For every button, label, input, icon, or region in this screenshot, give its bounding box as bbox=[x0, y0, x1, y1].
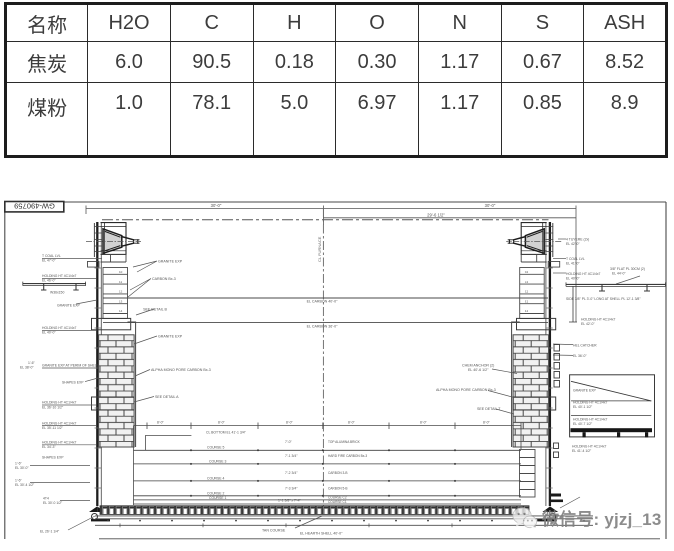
svg-text:HOLDING HT 4C1/4x7: HOLDING HT 4C1/4x7 bbox=[581, 317, 616, 321]
svg-text:EL 40'-7 1/2": EL 40'-7 1/2" bbox=[573, 422, 593, 426]
svg-text:EL 26'-1 1/4": EL 26'-1 1/4" bbox=[40, 530, 60, 534]
svg-text:COURSE 3: COURSE 3 bbox=[209, 459, 226, 463]
svg-text:30'-0": 30'-0" bbox=[211, 203, 222, 208]
svg-text:SEE DETAIL A: SEE DETAIL A bbox=[155, 395, 179, 399]
svg-text:T COAL LVL: T COAL LVL bbox=[42, 254, 61, 258]
svg-text:TAN COURSE: TAN COURSE bbox=[262, 529, 286, 533]
svg-text:8'-0": 8'-0" bbox=[483, 421, 491, 425]
svg-text:4T4: 4T4 bbox=[43, 496, 49, 500]
svg-text:SEE DETAIL B: SEE DETAIL B bbox=[143, 308, 167, 312]
svg-text:7'-2 3/4": 7'-2 3/4" bbox=[285, 471, 298, 475]
svg-text:HEL CATCHER: HEL CATCHER bbox=[573, 343, 597, 347]
svg-text:ALPHA MONO PORE CARBON Bx-3: ALPHA MONO PORE CARBON Bx-3 bbox=[151, 368, 211, 372]
svg-text:1'-1 3/8" x 7'-4": 1'-1 3/8" x 7'-4" bbox=[278, 498, 302, 502]
svg-text:HOLDING HT 4C1/4x7: HOLDING HT 4C1/4x7 bbox=[566, 272, 601, 276]
svg-text:EL 40'-6 1/2": EL 40'-6 1/2" bbox=[468, 368, 489, 372]
svg-text:8'-0": 8'-0" bbox=[348, 421, 356, 425]
svg-text:W36x150: W36x150 bbox=[50, 291, 64, 295]
svg-text:CHEM ANCHOR (2): CHEM ANCHOR (2) bbox=[462, 363, 494, 367]
svg-text:EL 30'-0": EL 30'-0" bbox=[15, 466, 29, 470]
svg-text:EL 40'-0": EL 40'-0" bbox=[42, 331, 56, 335]
svg-text:EL 41'-0": EL 41'-0" bbox=[566, 262, 580, 266]
svg-text:1'-6": 1'-6" bbox=[15, 478, 23, 482]
svg-text:TOP ALUMINA BRICK: TOP ALUMINA BRICK bbox=[328, 440, 361, 444]
svg-text:EL 38'-0": EL 38'-0" bbox=[20, 366, 34, 370]
svg-text:EL 46'-0": EL 46'-0" bbox=[42, 279, 56, 283]
svg-text:ALPHA MONO PORE CARBON Bx-3: ALPHA MONO PORE CARBON Bx-3 bbox=[436, 388, 496, 392]
svg-text:HOLDING HT 4C1/4x7: HOLDING HT 4C1/4x7 bbox=[572, 444, 607, 448]
svg-text:1'-6": 1'-6" bbox=[15, 461, 23, 465]
svg-text:COURSE C1: COURSE C1 bbox=[328, 500, 347, 504]
svg-text:EL 34'-3": EL 34'-3" bbox=[42, 445, 56, 449]
svg-text:HARD FIRE CARBON Bx-3: HARD FIRE CARBON Bx-3 bbox=[328, 454, 367, 458]
svg-text:30'-0": 30'-0" bbox=[485, 203, 496, 208]
svg-text:COURSE 2: COURSE 2 bbox=[207, 492, 224, 496]
svg-text:EL CARBON 40'-0": EL CARBON 40'-0" bbox=[307, 300, 339, 304]
svg-text:CL FURNACE: CL FURNACE bbox=[317, 236, 322, 262]
svg-text:EL 44'-0": EL 44'-0" bbox=[612, 272, 626, 276]
svg-text:1'-6": 1'-6" bbox=[28, 361, 36, 365]
svg-text:SHAPES EXP: SHAPES EXP bbox=[62, 380, 84, 384]
svg-text:GRANITE EXP: GRANITE EXP bbox=[158, 334, 183, 338]
svg-text:EL 35'-11 1/2": EL 35'-11 1/2" bbox=[42, 426, 64, 430]
svg-text:HOLDING HT 4C1/4x7: HOLDING HT 4C1/4x7 bbox=[573, 418, 608, 422]
svg-text:GW-490759: GW-490759 bbox=[14, 202, 55, 211]
svg-text:HOLDING HT 4C1/4x7: HOLDING HT 4C1/4x7 bbox=[42, 326, 77, 330]
svg-text:EL HEARTH SHELL 40'-0": EL HEARTH SHELL 40'-0" bbox=[300, 532, 343, 536]
svg-text:29'-6 1/2": 29'-6 1/2" bbox=[427, 212, 445, 217]
svg-text:COURSE 5: COURSE 5 bbox=[207, 446, 224, 450]
svg-text:GRANITE EXP: GRANITE EXP bbox=[573, 388, 597, 392]
svg-text:SHAPES EXP: SHAPES EXP bbox=[42, 455, 64, 459]
svg-text:EL 42'-0": EL 42'-0" bbox=[581, 322, 595, 326]
svg-text:8'-0": 8'-0" bbox=[218, 421, 226, 425]
svg-text:3/8" FLAT PL 30CM (2): 3/8" FLAT PL 30CM (2) bbox=[610, 267, 645, 271]
svg-text:CL BOTTOM EL 41'-1 3/4": CL BOTTOM EL 41'-1 3/4" bbox=[206, 430, 247, 434]
svg-text:8'-0": 8'-0" bbox=[157, 421, 165, 425]
svg-text:7'-0": 7'-0" bbox=[285, 440, 293, 444]
svg-text:14: 14 bbox=[119, 309, 123, 313]
svg-text:CARBON 5-B: CARBON 5-B bbox=[328, 486, 347, 490]
svg-text:SEE DETAIL T: SEE DETAIL T bbox=[477, 407, 501, 411]
svg-text:T COAL LVL: T COAL LVL bbox=[566, 257, 585, 261]
svg-text:13: 13 bbox=[119, 299, 123, 303]
svg-text:11: 11 bbox=[119, 280, 122, 284]
svg-text:EL 41'-4 1/2": EL 41'-4 1/2" bbox=[572, 449, 592, 453]
svg-text:8'-0": 8'-0" bbox=[286, 421, 294, 425]
svg-text:EL 40'-0": EL 40'-0" bbox=[566, 277, 580, 281]
svg-text:COURSE 1: COURSE 1 bbox=[209, 496, 226, 500]
svg-text:HOLDING HT 4C1/4x7: HOLDING HT 4C1/4x7 bbox=[42, 421, 77, 425]
svg-text:SIDE 3/8" PL 3'-0" LONG AT SHE: SIDE 3/8" PL 3'-0" LONG AT SHELL PL 12'-… bbox=[566, 297, 641, 301]
svg-text:7'-3 3/4": 7'-3 3/4" bbox=[285, 486, 298, 490]
svg-text:8'-0": 8'-0" bbox=[420, 421, 428, 425]
svg-text:GRANITE EXP: GRANITE EXP bbox=[158, 259, 183, 263]
svg-text:EL 40'-1 1/2": EL 40'-1 1/2" bbox=[573, 405, 593, 409]
svg-text:4 TUYERE (2x): 4 TUYERE (2x) bbox=[566, 238, 589, 242]
svg-text:EL CARBON 36'-0": EL CARBON 36'-0" bbox=[307, 324, 339, 328]
svg-text:HOLDING HT 4C1/4x7: HOLDING HT 4C1/4x7 bbox=[42, 274, 77, 278]
svg-text:10: 10 bbox=[119, 270, 123, 274]
svg-text:HOLDING HT 4C1/4x7: HOLDING HT 4C1/4x7 bbox=[42, 440, 77, 444]
svg-text:HOLDING HT 4C1/4x7: HOLDING HT 4C1/4x7 bbox=[42, 401, 77, 405]
svg-text:CARBON 3-B: CARBON 3-B bbox=[328, 471, 347, 475]
svg-text:EL 36'-10 1/2": EL 36'-10 1/2" bbox=[42, 405, 64, 409]
svg-text:GRANITE EXP AT PERIM OF SHELL: GRANITE EXP AT PERIM OF SHELL bbox=[42, 364, 99, 368]
svg-text:EL 36'-0": EL 36'-0" bbox=[573, 354, 587, 358]
svg-text:COURSE 4: COURSE 4 bbox=[207, 477, 224, 481]
svg-text:12: 12 bbox=[119, 290, 123, 294]
svg-text:EL 30'-0 1/2": EL 30'-0 1/2" bbox=[43, 501, 63, 505]
svg-text:EL 42'-0": EL 42'-0" bbox=[566, 242, 580, 246]
svg-text:EL 30'-4 1/2": EL 30'-4 1/2" bbox=[15, 483, 35, 487]
svg-text:7'-1 3/4": 7'-1 3/4" bbox=[285, 454, 298, 458]
svg-text:EL 47'-0": EL 47'-0" bbox=[42, 259, 56, 263]
svg-text:CARBON Bx-3: CARBON Bx-3 bbox=[152, 277, 176, 281]
